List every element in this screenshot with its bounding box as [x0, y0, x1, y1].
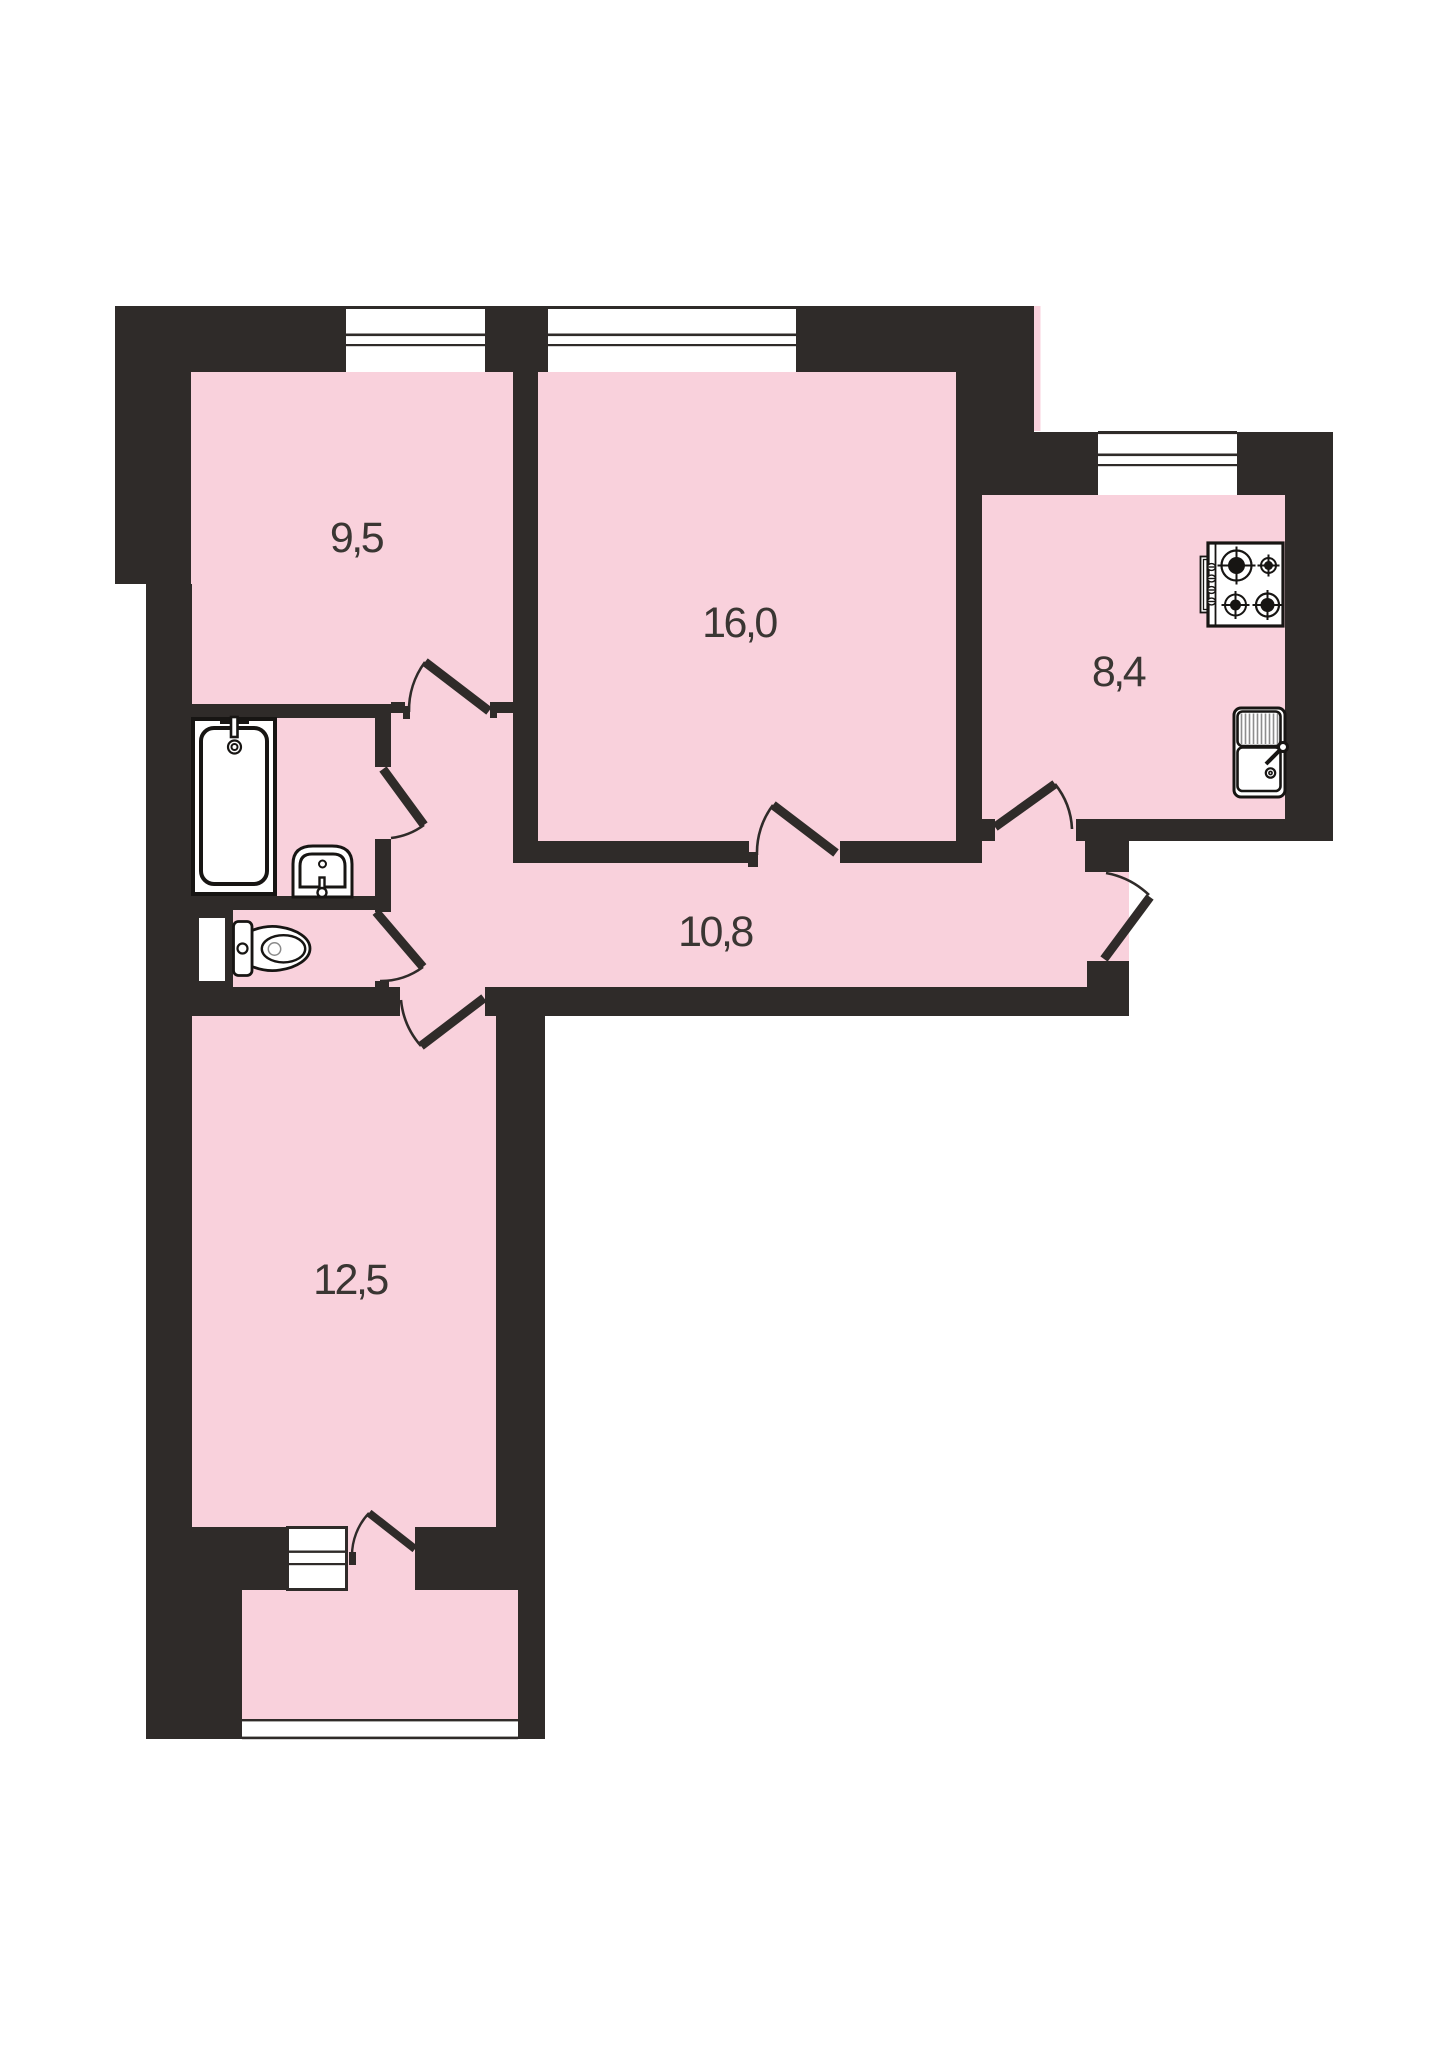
svg-text:16,0: 16,0	[702, 599, 777, 647]
svg-text:12,5: 12,5	[313, 1256, 388, 1304]
svg-text:8,4: 8,4	[1092, 648, 1146, 696]
svg-text:9,5: 9,5	[330, 514, 384, 562]
svg-text:10,8: 10,8	[678, 908, 753, 956]
